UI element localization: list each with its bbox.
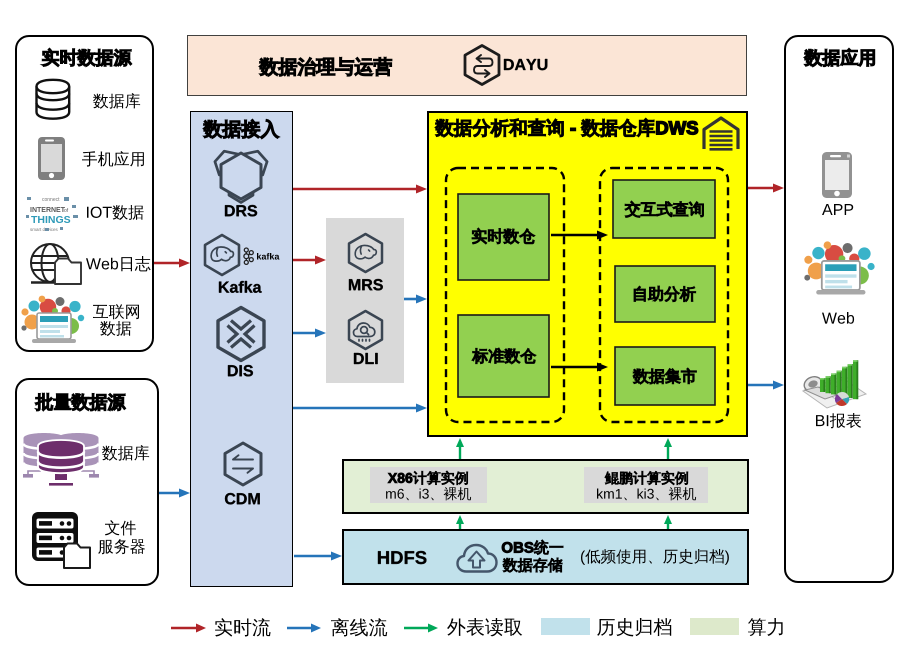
svg-text:INTERNET: INTERNET — [30, 207, 66, 214]
svg-text:smart devices: smart devices — [30, 227, 59, 232]
svg-text:THINGS: THINGS — [31, 214, 71, 226]
svg-text:connect: connect — [42, 197, 60, 203]
